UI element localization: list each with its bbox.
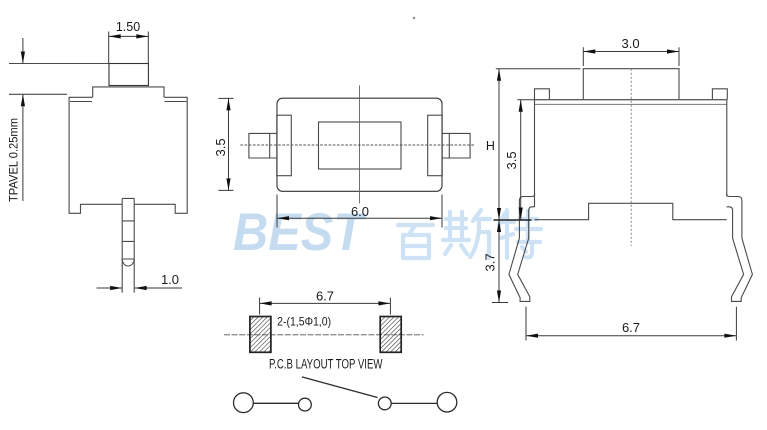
svg-text:H: H bbox=[486, 139, 495, 153]
svg-text:3.0: 3.0 bbox=[622, 36, 640, 51]
svg-text:BEST: BEST bbox=[233, 203, 367, 262]
svg-text:3.5: 3.5 bbox=[213, 138, 228, 156]
svg-text:1.0: 1.0 bbox=[161, 272, 179, 287]
svg-text:3.5: 3.5 bbox=[504, 151, 519, 169]
svg-text:6.7: 6.7 bbox=[622, 320, 640, 335]
svg-text:P.C.B LAYOUT TOP VIEW: P.C.B LAYOUT TOP VIEW bbox=[269, 357, 383, 372]
svg-text:1.50: 1.50 bbox=[116, 20, 140, 34]
svg-text:6.7: 6.7 bbox=[316, 289, 334, 304]
svg-text:3.7: 3.7 bbox=[483, 253, 498, 271]
svg-text:TPAVEL 0.25mm: TPAVEL 0.25mm bbox=[7, 118, 21, 202]
svg-text:6.0: 6.0 bbox=[351, 204, 369, 219]
svg-text:2-(1,5Φ1,0): 2-(1,5Φ1,0) bbox=[277, 314, 331, 328]
